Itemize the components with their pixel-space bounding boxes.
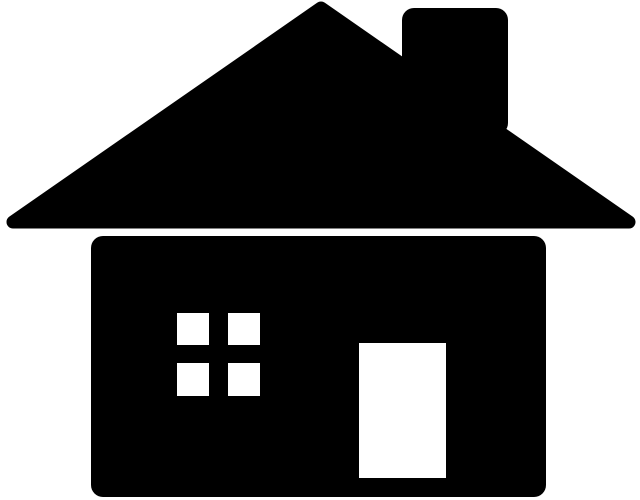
house-icon-svg: [0, 0, 640, 500]
chimney-shape: [402, 8, 508, 135]
window-pane: [228, 313, 260, 345]
window-pane: [177, 313, 209, 345]
house-body-shape: [91, 236, 546, 497]
house-icon-image: [0, 0, 640, 500]
roof-shape: [13, 8, 629, 222]
door-shape: [359, 343, 446, 478]
window-pane: [177, 363, 209, 396]
window-pane: [228, 363, 260, 396]
